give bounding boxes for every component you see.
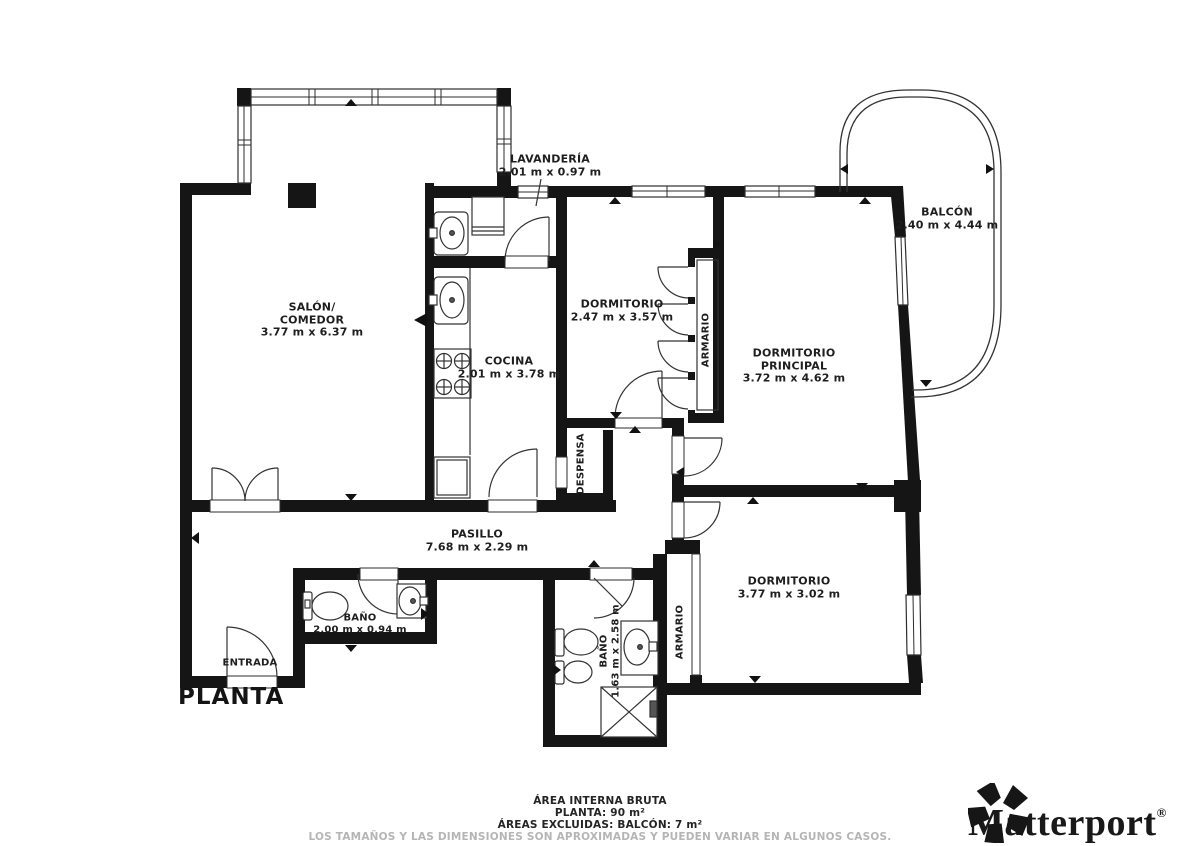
room-label-armario1: ARMARIO	[700, 313, 712, 367]
room-label-entrada: ENTRADA	[223, 657, 278, 669]
room-label-armario2: ARMARIO	[674, 605, 686, 659]
floorplan-drawing	[0, 0, 1200, 846]
room-label-cocina: COCINA 2.01 m x 3.78 m	[458, 356, 561, 381]
floor-plan-page: LAVANDERÍA 2.01 m x 0.97 m SALÓN/ COMEDO…	[0, 0, 1200, 846]
matterport-pinwheel-icon	[968, 783, 1030, 843]
room-label-bano1: BAÑO 2.00 m x 0.94 m	[313, 613, 407, 636]
room-label-dormitorio1: DORMITORIO 2.47 m x 3.57 m	[571, 299, 674, 324]
room-label-balcon: BALCÓN 2.40 m x 4.44 m	[896, 207, 999, 232]
room-label-salon: SALÓN/ COMEDOR 3.77 m x 6.37 m	[261, 301, 364, 339]
room-label-lavanderia: LAVANDERÍA 2.01 m x 0.97 m	[499, 154, 602, 179]
toilet-icon	[555, 629, 564, 656]
room-label-bano2: BAÑO 1.63 m x 2.58 m	[599, 604, 622, 698]
balcony-outline	[840, 90, 1001, 397]
registered-mark: ®	[1157, 805, 1167, 820]
room-label-dormitorio2: DORMITORIO 3.77 m x 3.02 m	[738, 576, 841, 601]
plan-title: PLANTA	[178, 684, 284, 710]
room-label-despensa: DESPENSA	[575, 433, 587, 494]
room-label-principal: DORMITORIO PRINCIPAL 3.72 m x 4.62 m	[743, 347, 846, 385]
matterport-brand: Matterport®	[968, 783, 1167, 846]
room-label-pasillo: PASILLO 7.68 m x 2.29 m	[426, 529, 529, 554]
washer-icon	[472, 197, 504, 235]
